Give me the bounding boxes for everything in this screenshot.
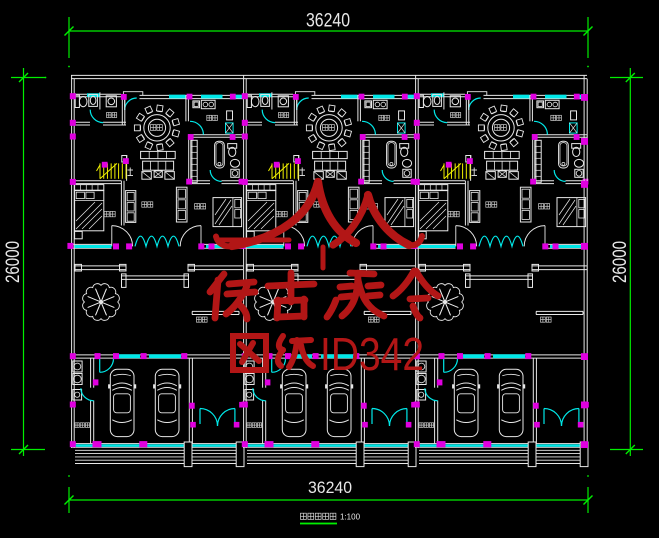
svg-text:26000: 26000 xyxy=(610,241,631,283)
svg-text:1:100: 1:100 xyxy=(340,513,361,522)
svg-text:36240: 36240 xyxy=(306,11,350,32)
svg-text:36240: 36240 xyxy=(308,478,352,497)
svg-text:26000: 26000 xyxy=(3,241,24,283)
svg-text:ID342: ID342 xyxy=(320,328,424,380)
